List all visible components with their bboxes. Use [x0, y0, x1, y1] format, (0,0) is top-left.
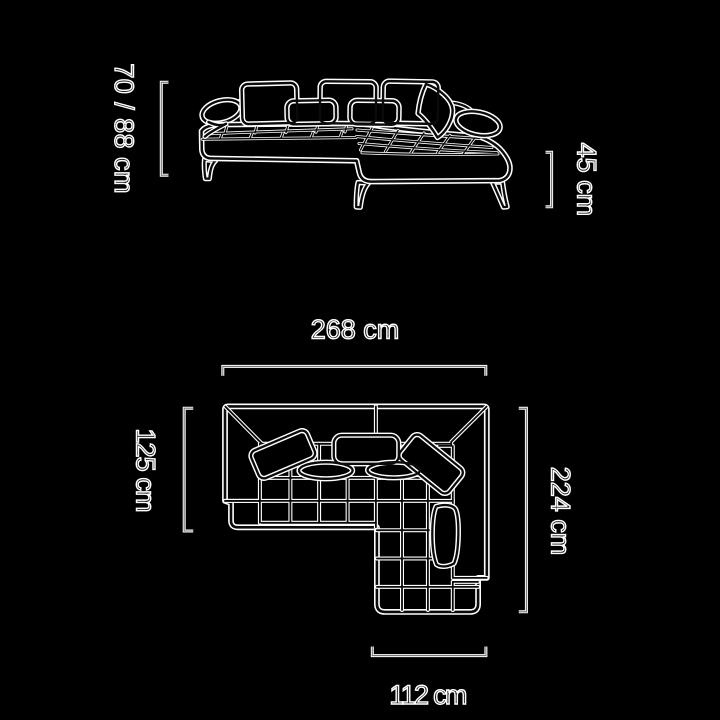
svg-text:268 cm: 268 cm — [311, 315, 400, 345]
svg-text:125 cm: 125 cm — [131, 428, 161, 511]
svg-text:112 cm: 112 cm — [389, 680, 466, 710]
svg-text:45 cm: 45 cm — [572, 143, 602, 217]
svg-text:224 cm: 224 cm — [546, 467, 576, 556]
svg-text:70 / 88 cm: 70 / 88 cm — [109, 63, 139, 194]
